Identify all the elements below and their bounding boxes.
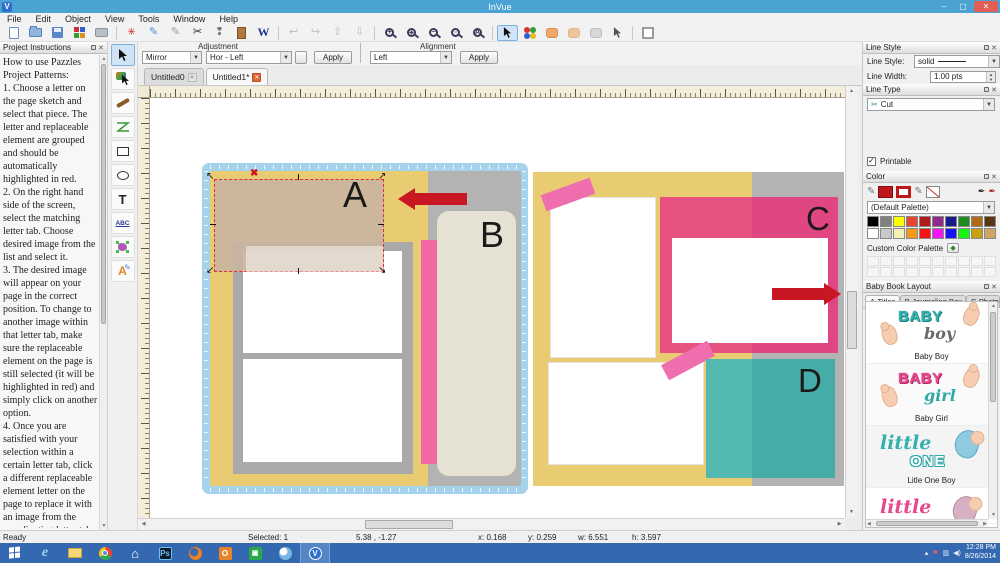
add-custom-color-button[interactable]: ◆ [947, 243, 959, 253]
menu-item-tools[interactable]: Tools [131, 14, 166, 24]
save-disk-icon [52, 27, 63, 38]
photo-box-3[interactable] [550, 197, 656, 358]
node-pointer-icon [116, 72, 130, 86]
custom-color-cell[interactable] [880, 256, 892, 266]
ellipse-icon [117, 171, 129, 180]
clock-time: 12:28 PM [965, 544, 996, 553]
palette-dropdown[interactable]: (Default Palette) ▼ [867, 201, 995, 214]
library-item-caption: Baby Boy [866, 352, 997, 361]
taskbar: e ⌂ Ps O ▣ V ▴ ⚑ ▥ ◀) 12:28 PM 8/26/2014 [0, 543, 1000, 563]
baby-foot-icon [879, 322, 900, 347]
thumb-word: ONE [910, 453, 946, 470]
red-arrow-a [398, 188, 467, 210]
color-swatch[interactable] [893, 228, 905, 239]
menu-bar: FileEditObjectViewToolsWindowHelp [0, 13, 1000, 24]
taskbar-invue[interactable]: V [300, 543, 330, 563]
cut-project-button[interactable]: ✳ [121, 25, 142, 41]
color-swatch[interactable] [906, 228, 918, 239]
tab-untitled1[interactable]: Untitled1* ✕ [206, 68, 269, 85]
pin-icon[interactable] [91, 45, 96, 50]
chevron-down-icon: ▼ [988, 56, 999, 67]
custom-color-cell[interactable] [971, 256, 983, 266]
color-swatch[interactable] [984, 216, 996, 227]
close-panel-icon[interactable]: ✕ [98, 44, 104, 52]
library-item-caption: Baby Girl [866, 414, 997, 423]
line-style-value: solid [918, 57, 934, 66]
rectangle-icon [117, 147, 129, 156]
color-swatch[interactable] [945, 216, 957, 227]
resize-handle-sw[interactable]: ↙ [206, 266, 214, 276]
taskbar-chrome[interactable] [90, 543, 120, 563]
instructions-scrollbar[interactable]: ▲ ▼ [99, 55, 107, 530]
text-tool[interactable]: T [111, 188, 135, 210]
tab-untitled0[interactable]: Untitled0 ✕ [144, 68, 204, 85]
outlook-icon: O [219, 547, 232, 560]
scroll-down-icon[interactable]: ▼ [989, 511, 998, 519]
no-color-button[interactable] [926, 186, 940, 198]
color-title: Color [866, 172, 885, 181]
zoom-in-button[interactable]: + [379, 25, 400, 41]
burst-icon: ✳ [127, 28, 135, 38]
line-type-title: Line Type [866, 85, 901, 94]
color-swatch[interactable] [867, 228, 879, 239]
windows-logo-icon [9, 546, 21, 559]
library-vertical-scrollbar[interactable]: ▲ ▼ [988, 302, 997, 519]
color-swatch[interactable] [958, 228, 970, 239]
eyedropper-button[interactable]: ✒ [978, 186, 986, 197]
import-button[interactable]: ⇧ [327, 25, 348, 41]
label-letter-c: C [806, 202, 830, 235]
engrave-tool-button[interactable]: ✎ [165, 25, 186, 41]
fill-color-swatch[interactable] [878, 186, 893, 198]
custom-color-cell[interactable] [932, 256, 944, 266]
library-header: Baby Book Layout ✕ [863, 281, 1000, 293]
line-width-spinner[interactable]: 1.00 pts ▲▼ [930, 71, 996, 83]
weld-icon [546, 28, 558, 38]
resize-handle-s[interactable] [298, 268, 299, 274]
color-grid-icon [74, 27, 85, 38]
close-panel-icon[interactable]: ✕ [991, 173, 997, 181]
project-instructions-title: Project Instructions [3, 43, 71, 52]
zoom-page-icon: ▫ [451, 28, 460, 37]
zoom-selected-button[interactable]: ✦ [401, 25, 422, 41]
color-swatch[interactable] [867, 216, 879, 227]
image-trace-tool[interactable] [111, 236, 135, 258]
mat-button[interactable] [91, 25, 112, 41]
custom-color-cell[interactable] [906, 267, 918, 277]
photo-box-5[interactable] [548, 362, 704, 465]
status-y: y: 0.259 [528, 533, 556, 542]
resize-handle-e[interactable] [378, 224, 384, 225]
menu-item-file[interactable]: File [0, 14, 29, 24]
send-button[interactable]: ⇩ [349, 25, 370, 41]
rectangle-tool[interactable] [111, 140, 135, 162]
alignment-value: Left [374, 53, 387, 62]
tray-expand-icon[interactable]: ▴ [925, 549, 929, 557]
color-swatch[interactable] [945, 228, 957, 239]
mirror-dropdown[interactable]: Mirror ▼ [142, 51, 202, 64]
adjustment-group-label: Adjustment [198, 42, 238, 51]
home-icon: ⌂ [131, 546, 139, 561]
knife-tool[interactable] [111, 92, 135, 114]
line-style-dropdown[interactable]: solid ▼ [914, 55, 1000, 68]
canvas-area: Untitled0 ✕ Untitled1* ✕ [138, 65, 862, 530]
marquee-icon [642, 27, 654, 39]
baby-foot-icon [960, 365, 982, 390]
chrome-icon [99, 547, 112, 560]
custom-color-cell[interactable] [945, 267, 957, 277]
adjustment-toolbar: Adjustment Mirror ▼ Hor - Left ▼ Apply A… [138, 42, 862, 65]
export-button[interactable] [231, 25, 252, 41]
status-x: x: 0.168 [478, 533, 506, 542]
select-tool[interactable] [111, 44, 135, 66]
zoom-out-button[interactable]: − [423, 25, 444, 41]
ellipse-tool[interactable] [111, 164, 135, 186]
taskbar-file-explorer[interactable] [60, 543, 90, 563]
baby-girl-thumbnail: BABY girl [866, 366, 997, 414]
text-on-path-tool[interactable]: ABC [111, 212, 135, 234]
baby-foot-icon [960, 303, 982, 328]
line-style-label: Line Style: [867, 57, 904, 66]
gray-pen-icon: ✎ [171, 27, 180, 38]
knife-icon [115, 98, 129, 108]
document-tabs: Untitled0 ✕ Untitled1* ✕ [138, 65, 862, 86]
title-bar: V InVue – ▢ ✕ [0, 0, 1000, 13]
tray-network-icon[interactable]: ▥ [943, 549, 950, 557]
mirror-mode-value: Hor - Left [210, 53, 243, 62]
taskbar-firefox[interactable] [180, 543, 210, 563]
mirror-value: Mirror [146, 53, 167, 62]
color-swatch[interactable] [893, 216, 905, 227]
menu-item-object[interactable]: Object [58, 14, 98, 24]
label-letter-d: D [798, 364, 822, 397]
pick-shape-button[interactable] [607, 25, 628, 41]
intersect-button[interactable] [585, 25, 606, 41]
custom-color-cell[interactable] [893, 256, 905, 266]
letter-pen-icon: A ✎ [118, 264, 127, 278]
status-ready: Ready [3, 533, 26, 542]
horizontal-ruler [150, 86, 845, 98]
canvas-horizontal-scrollbar[interactable]: ◀ ▶ [138, 518, 845, 530]
mirror-option-button[interactable] [295, 51, 307, 64]
custom-color-cell[interactable] [984, 256, 996, 266]
w-icon: W [258, 25, 270, 40]
workspace[interactable]: ↖ ↗ ↙ ↘ ✖ A B C [150, 98, 845, 518]
custom-color-cell[interactable] [919, 267, 931, 277]
chevron-down-icon: ▼ [190, 52, 201, 63]
status-bar: Ready Selected: 1 5.38 , -1.27 x: 0.168 … [0, 530, 1000, 543]
pen-tool-button[interactable]: ✎ [143, 25, 164, 41]
little-one-thumbnail: little ONE [866, 428, 997, 476]
scroll-down-icon[interactable]: ▼ [846, 507, 857, 518]
invue-application-window: V InVue – ▢ ✕ FileEditObjectViewToolsWin… [0, 0, 1000, 563]
color-swatch[interactable] [932, 216, 944, 227]
printable-checkbox[interactable]: ✓ [867, 157, 876, 166]
line-width-value: 1.00 pts [934, 72, 962, 81]
open-folder-icon [29, 28, 42, 37]
resize-handle-ne[interactable]: ↗ [378, 172, 386, 182]
select-tool-button[interactable] [497, 25, 518, 41]
fill-tool-icon[interactable]: ✎ [867, 186, 875, 197]
abc-icon: ABC [115, 220, 129, 227]
color-swatch[interactable] [958, 216, 970, 227]
color-swatch[interactable] [971, 228, 983, 239]
thumb-word: boy [924, 324, 955, 343]
tray-volume-icon[interactable]: ◀) [953, 549, 961, 557]
pin-icon[interactable] [984, 45, 989, 50]
eyedropper-alt-button[interactable]: ✒ [988, 186, 996, 197]
tab-close-icon[interactable]: ✕ [252, 73, 261, 82]
custom-palette-label: Custom Color Palette [867, 244, 943, 253]
status-cursor-position: 5.38 , -1.27 [356, 533, 396, 542]
scissors-icon: ✂ [871, 100, 878, 109]
line-style-title: Line Style [866, 43, 901, 52]
custom-color-cell[interactable] [984, 267, 996, 277]
store-bag-icon: ▣ [249, 547, 262, 560]
custom-color-cell[interactable] [919, 256, 931, 266]
open-button[interactable] [25, 25, 46, 41]
alignment-group-label: Alignment [420, 42, 456, 51]
pink-ribbon[interactable] [421, 240, 437, 464]
thumb-word: BABY [898, 308, 943, 325]
line-type-dropdown[interactable]: ✂ Cut ▼ [867, 98, 995, 111]
line-type-value: Cut [881, 100, 893, 109]
image-select-icon [116, 241, 129, 253]
color-swatch[interactable] [919, 228, 931, 239]
subtract-icon [568, 28, 580, 38]
status-selected: Selected: 1 [248, 533, 288, 542]
adjustment-apply-button[interactable]: Apply [314, 51, 352, 64]
weld-button[interactable] [541, 25, 562, 41]
partial-thumbnail: little [866, 490, 997, 520]
resize-handle-nw[interactable]: ↖ [206, 172, 214, 182]
mirror-mode-dropdown[interactable]: Hor - Left ▼ [206, 51, 292, 64]
thumb-word: little [880, 496, 931, 518]
printable-label: Printable [880, 157, 912, 166]
pin-icon[interactable] [984, 284, 989, 289]
scroll-up-icon[interactable]: ▲ [100, 55, 108, 63]
stroke-color-swatch[interactable] [896, 186, 911, 198]
door-icon [237, 27, 246, 39]
color-swatch[interactable] [984, 228, 996, 239]
tab-close-icon[interactable]: ✕ [188, 73, 197, 82]
subtract-button[interactable] [563, 25, 584, 41]
tools-toolbar: T ABC A ✎ [108, 42, 138, 530]
library-item-baby-boy[interactable]: BABY boy Baby Boy [866, 302, 997, 364]
pin-icon[interactable] [984, 174, 989, 179]
baby-boy-thumbnail: BABY boy [866, 304, 997, 352]
color-header: Color ✕ [863, 171, 1000, 183]
baby-foot-icon [879, 384, 900, 409]
polyline-tool[interactable] [111, 116, 135, 138]
blade-icon: ❢ [215, 27, 224, 38]
scissors-button[interactable]: ✂ [187, 25, 208, 41]
custom-color-cell[interactable] [971, 267, 983, 277]
delete-anchor-icon[interactable]: ✖ [250, 168, 258, 179]
thumb-word: BABY [898, 370, 943, 387]
library-item-baby-girl[interactable]: BABY girl Baby Girl [866, 364, 997, 426]
menu-item-help[interactable]: Help [212, 14, 245, 24]
scroll-up-icon[interactable]: ▲ [989, 302, 998, 310]
custom-color-cell[interactable] [867, 267, 879, 277]
polyline-icon [116, 121, 130, 133]
custom-palette-row-2 [863, 266, 1000, 277]
ie-icon: e [42, 545, 48, 561]
save-button[interactable] [47, 25, 68, 41]
library-item-caption: Litle One Boy [866, 476, 997, 485]
clock-date: 8/26/2014 [965, 553, 996, 562]
stroke-tool-icon[interactable]: ✎ [914, 186, 922, 197]
photo-box-2[interactable] [243, 359, 402, 462]
color-nodes-icon [524, 27, 536, 39]
chevron-down-icon: ▼ [440, 52, 451, 63]
taskbar-outlook[interactable]: O [210, 543, 240, 563]
vertical-ruler [138, 98, 150, 518]
label-letter-a: A [343, 177, 367, 213]
line-type-header: Line Type ✕ [863, 84, 1000, 96]
resize-handle-w[interactable] [210, 224, 216, 225]
canvas-vertical-scrollbar[interactable]: ▲ ▼ [845, 86, 858, 518]
zoom-selected-icon: ✦ [407, 28, 416, 37]
ruler-corner [138, 86, 150, 98]
workspace-button[interactable]: W [253, 25, 274, 41]
project-instructions-header: Project Instructions ✕ [0, 42, 107, 54]
color-nodes-button[interactable] [519, 25, 540, 41]
monogram-tool[interactable]: A ✎ [111, 260, 135, 282]
project-instructions-text: How to use Pazzles Project Patterns: 1. … [3, 56, 98, 528]
new-button[interactable] [3, 25, 24, 41]
folder-icon [68, 548, 82, 558]
text-icon: T [119, 192, 127, 207]
color-swatch[interactable] [919, 216, 931, 227]
new-document-icon [9, 27, 19, 39]
zoom-all-icon: A [473, 28, 482, 37]
menu-item-view[interactable]: View [98, 14, 131, 24]
resize-handle-n[interactable] [298, 174, 299, 180]
color-swatch[interactable] [906, 216, 918, 227]
taskbar-home[interactable]: ⌂ [120, 543, 150, 563]
pointer-icon [503, 26, 512, 39]
scroll-up-icon[interactable]: ▲ [846, 86, 857, 97]
custom-color-cell[interactable] [945, 256, 957, 266]
zoom-page-button[interactable]: ▫ [445, 25, 466, 41]
alignment-apply-button[interactable]: Apply [460, 51, 498, 64]
custom-color-cell[interactable] [932, 267, 944, 277]
custom-color-cell[interactable] [893, 267, 905, 277]
zoom-all-button[interactable]: A [467, 25, 488, 41]
chevron-down-icon: ▼ [983, 99, 994, 110]
custom-color-cell[interactable] [867, 256, 879, 266]
right-panel: Line Style ✕ Line Style: solid ▼ Line Wi… [862, 42, 1000, 530]
library-horizontal-scrollbar[interactable]: ◀ ▶ [866, 519, 988, 527]
alignment-dropdown[interactable]: Left ▼ [370, 51, 452, 64]
close-panel-icon[interactable]: ✕ [991, 283, 997, 291]
thumb-word: little [880, 432, 931, 454]
library-item-little-one-boy[interactable]: little ONE Litle One Boy [866, 426, 997, 488]
taskbar-internet-explorer[interactable]: e [30, 543, 60, 563]
library-title: Baby Book Layout [866, 282, 931, 291]
color-swatch[interactable] [932, 228, 944, 239]
color-swatch[interactable] [880, 216, 892, 227]
custom-color-cell[interactable] [880, 267, 892, 277]
status-w: w: 6.551 [578, 533, 608, 542]
close-panel-icon[interactable]: ✕ [991, 86, 997, 94]
palette-button[interactable] [69, 25, 90, 41]
send-icon: ⇩ [355, 27, 364, 38]
bird-icon [279, 547, 292, 560]
restore-button[interactable]: ▢ [955, 1, 971, 12]
window-title: InVue [0, 2, 1000, 12]
library-list: BABY boy Baby Boy BABY girl Baby Girl li… [865, 301, 998, 528]
tray-flag-icon[interactable]: ⚑ [932, 549, 938, 557]
spinner-arrows-icon[interactable]: ▲▼ [986, 72, 995, 82]
line-style-header: Line Style ✕ [863, 42, 1000, 54]
custom-color-cell[interactable] [958, 256, 970, 266]
scroll-right-icon[interactable]: ▶ [834, 519, 845, 530]
menu-item-edit[interactable]: Edit [29, 14, 59, 24]
import-icon: ⇧ [333, 27, 342, 38]
journaling-box-b[interactable] [437, 211, 516, 476]
taskbar-store[interactable]: ▣ [240, 543, 270, 563]
close-panel-icon[interactable]: ✕ [991, 44, 997, 52]
blade-button[interactable]: ❢ [209, 25, 230, 41]
zoom-out-icon: − [429, 28, 438, 37]
tab-label: Untitled0 [151, 72, 185, 82]
palette-row-1 [863, 215, 1000, 227]
gray-pointer-icon [613, 26, 622, 39]
start-button[interactable] [0, 543, 30, 563]
invue-icon: V [309, 547, 322, 560]
marquee-button[interactable] [637, 25, 658, 41]
close-button[interactable]: ✕ [974, 1, 998, 12]
blue-pen-icon: ✎ [149, 27, 158, 38]
intersect-icon [590, 28, 602, 38]
zoom-in-icon: + [385, 28, 394, 37]
palette-row-2 [863, 227, 1000, 239]
red-arrow-c [772, 283, 841, 305]
redo-button[interactable]: ↪ [305, 25, 326, 41]
taskbar-clock[interactable]: 12:28 PM 8/26/2014 [965, 544, 996, 562]
color-swatch[interactable] [880, 228, 892, 239]
taskbar-mail[interactable] [270, 543, 300, 563]
scroll-down-icon[interactable]: ▼ [100, 522, 108, 530]
main-toolbar: ✳ ✎ ✎ ✂ ❢ W ↩ ↪ ⇧ ⇩ + ✦ − ▫ A [0, 24, 1000, 42]
custom-color-cell[interactable] [958, 267, 970, 277]
color-swatch[interactable] [971, 216, 983, 227]
resize-handle-se[interactable]: ↘ [378, 266, 386, 276]
pin-icon[interactable] [984, 87, 989, 92]
custom-color-cell[interactable] [906, 256, 918, 266]
minimize-button[interactable]: – [936, 1, 952, 12]
scroll-right-icon[interactable]: ▶ [983, 521, 987, 527]
scroll-left-icon[interactable]: ◀ [138, 519, 149, 530]
taskbar-photoshop[interactable]: Ps [150, 543, 180, 563]
scissors-icon: ✂ [193, 27, 202, 38]
line-preview [938, 61, 966, 62]
cutting-mat-icon [95, 28, 108, 37]
undo-button[interactable]: ↩ [283, 25, 304, 41]
node-edit-tool[interactable] [111, 68, 135, 90]
menu-item-window[interactable]: Window [166, 14, 212, 24]
label-letter-b: B [480, 217, 504, 253]
firefox-icon [189, 547, 202, 560]
photoshop-icon: Ps [159, 547, 172, 560]
project-instructions-panel: Project Instructions ✕ How to use Pazzle… [0, 42, 108, 530]
custom-palette-row-1 [863, 255, 1000, 266]
status-h: h: 3.597 [632, 533, 661, 542]
chevron-down-icon: ▼ [983, 202, 994, 213]
scroll-left-icon[interactable]: ◀ [867, 521, 871, 527]
